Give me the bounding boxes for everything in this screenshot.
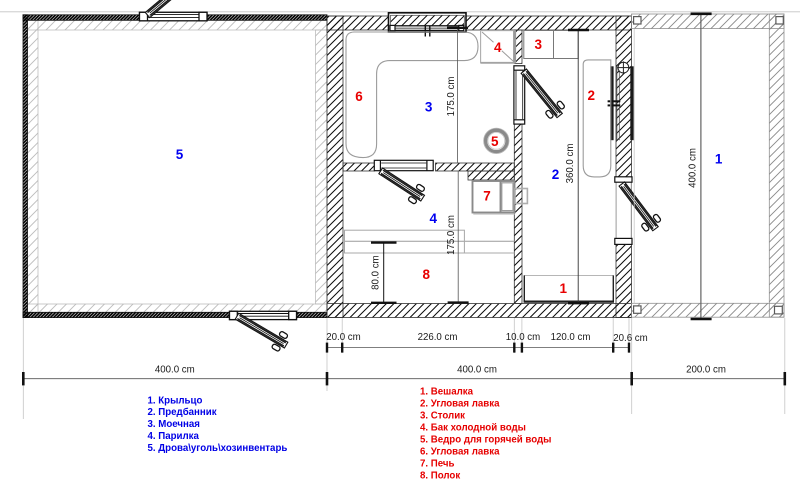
svg-text:5: 5	[176, 147, 184, 162]
svg-text:4: 4	[494, 40, 502, 55]
svg-text:1: 1	[560, 281, 568, 296]
svg-text:360.0 cm: 360.0 cm	[565, 144, 576, 184]
svg-text:200.0 cm: 200.0 cm	[686, 364, 726, 375]
svg-text:6: 6	[355, 89, 363, 104]
svg-text:2: 2	[552, 167, 560, 182]
svg-text:7: 7	[483, 189, 491, 204]
svg-text:2: 2	[587, 88, 595, 103]
svg-text:1. Крыльцо: 1. Крыльцо	[148, 395, 203, 406]
svg-text:5. Ведро для горячей воды: 5. Ведро для горячей воды	[420, 434, 551, 445]
svg-text:3. Столик: 3. Столик	[420, 410, 465, 421]
svg-text:1. Вешалка: 1. Вешалка	[420, 386, 474, 397]
svg-text:3: 3	[425, 99, 433, 114]
svg-text:226.0 cm: 226.0 cm	[418, 332, 458, 343]
svg-text:400.0 cm: 400.0 cm	[687, 148, 698, 188]
svg-text:10.0 cm: 10.0 cm	[506, 332, 540, 343]
svg-text:3. Моечная: 3. Моечная	[148, 419, 200, 430]
svg-text:4. Бак холодной воды: 4. Бак холодной воды	[420, 422, 526, 433]
svg-text:3: 3	[534, 37, 542, 52]
svg-text:8: 8	[423, 267, 431, 282]
svg-text:8. Полок: 8. Полок	[420, 470, 460, 481]
svg-text:1: 1	[715, 151, 723, 166]
svg-text:175.0 cm: 175.0 cm	[446, 215, 457, 255]
svg-text:20.0 cm: 20.0 cm	[326, 332, 360, 343]
svg-text:80.0 cm: 80.0 cm	[370, 255, 381, 289]
svg-text:175.0 cm: 175.0 cm	[446, 77, 457, 117]
svg-text:7. Печь: 7. Печь	[420, 458, 455, 469]
svg-text:4. Парилка: 4. Парилка	[148, 431, 200, 442]
svg-text:2. Угловая лавка: 2. Угловая лавка	[420, 398, 500, 409]
svg-text:400.0 cm: 400.0 cm	[457, 364, 497, 375]
svg-text:20.6 cm: 20.6 cm	[613, 333, 647, 344]
svg-text:2. Предбанник: 2. Предбанник	[148, 407, 217, 418]
svg-text:4: 4	[430, 211, 438, 226]
svg-text:400.0 cm: 400.0 cm	[155, 364, 195, 375]
svg-text:5. Дрова\уголь\хозинвентарь: 5. Дрова\уголь\хозинвентарь	[148, 443, 288, 454]
svg-text:120.0 cm: 120.0 cm	[551, 332, 591, 343]
svg-text:5: 5	[491, 134, 499, 149]
svg-text:6. Угловая лавка: 6. Угловая лавка	[420, 446, 500, 457]
